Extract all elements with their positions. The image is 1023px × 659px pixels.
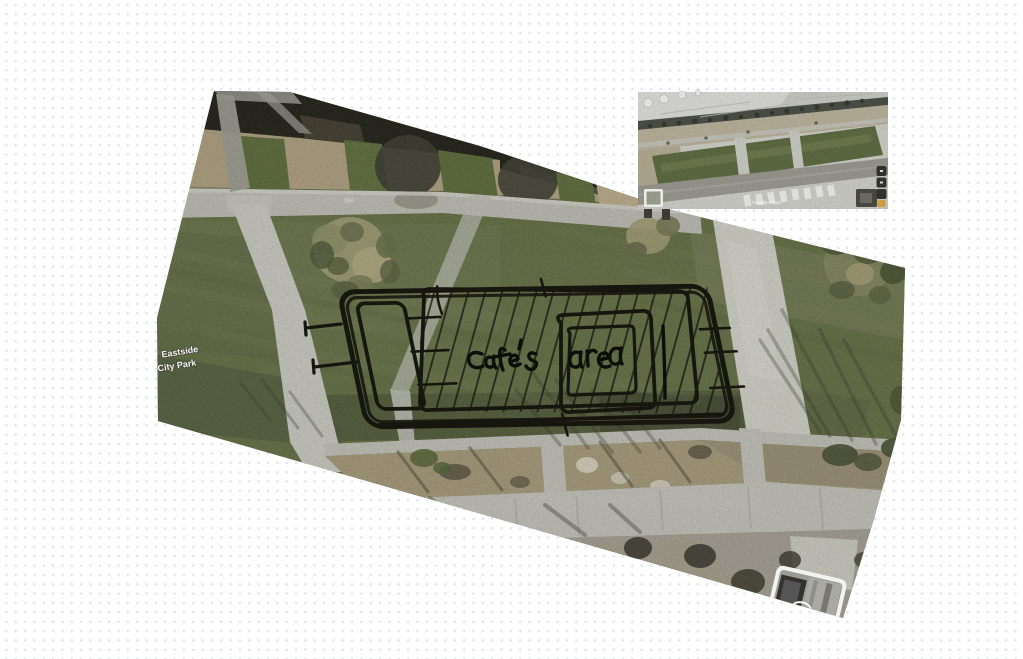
svg-text:Google Maps: Google Maps [752,200,781,206]
